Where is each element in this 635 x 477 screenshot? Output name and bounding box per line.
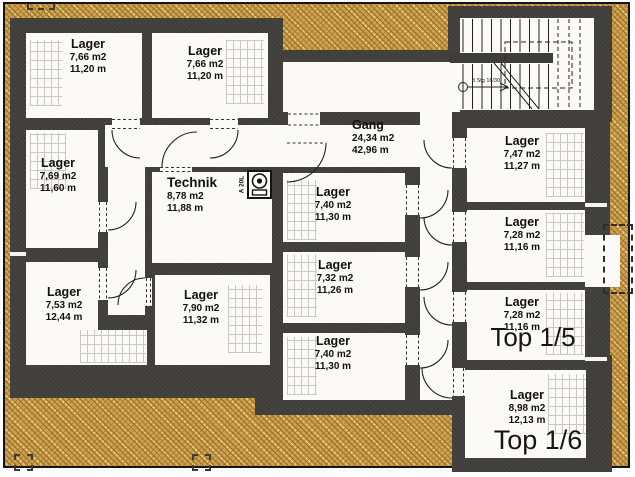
door-swing-arc [424,217,452,245]
room-label-l1: Lager7,69 m211,60 m [22,156,94,195]
room-label-r1: Lager7,47 m211,27 m [486,134,558,173]
door-swing-arc [424,297,452,325]
door-swing-arc [108,202,136,230]
door-swing-arc [210,130,238,158]
door-swing-arc [118,278,145,305]
unit-label-top16: Top 1/6 [485,425,591,456]
room-label-m2: Lager7,32 m211,26 m [300,258,370,297]
plan-line [494,63,532,109]
room-label-gang: Gang24,34 m242,96 m [352,118,434,157]
door-swing-arc [420,340,448,368]
stair-note: 8 Stg 16/30 [472,78,500,84]
unit-label-top15: Top 1/5 [482,322,584,353]
room-label-m_bl: Lager7,90 m211,32 m [168,288,234,327]
room-label-tl1: Lager7,66 m211,20 m [48,37,128,76]
door-swing-arc [162,132,197,167]
fold-mark [14,454,33,471]
fold-mark [27,0,55,10]
room-label-r4: Lager8,98 m212,13 m [491,388,563,427]
floorplan-page: A 20L 8 Stg 16/30 Lager7,66 m211,20 mLag… [0,0,635,477]
door-swing-arc [112,130,140,158]
room-label-r2: Lager7,28 m211,16 m [486,215,558,254]
door-swing-arc [420,190,448,218]
room-label-tl2: Lager7,66 m211,20 m [165,44,245,83]
room-label-technik: Technik8,78 m211,88 m [167,175,259,215]
door-swing-arc [420,262,448,290]
room-label-m3: Lager7,40 m211,30 m [298,334,368,373]
room-label-l2: Lager7,53 m212,44 m [32,285,96,324]
fold-mark [192,454,211,471]
stair-landing-wall [450,53,553,63]
door-swing-arc [108,270,136,298]
room-label-m1: Lager7,40 m211,30 m [298,185,368,224]
door-swing-arc [287,143,326,182]
door-swing-arc [422,368,452,398]
